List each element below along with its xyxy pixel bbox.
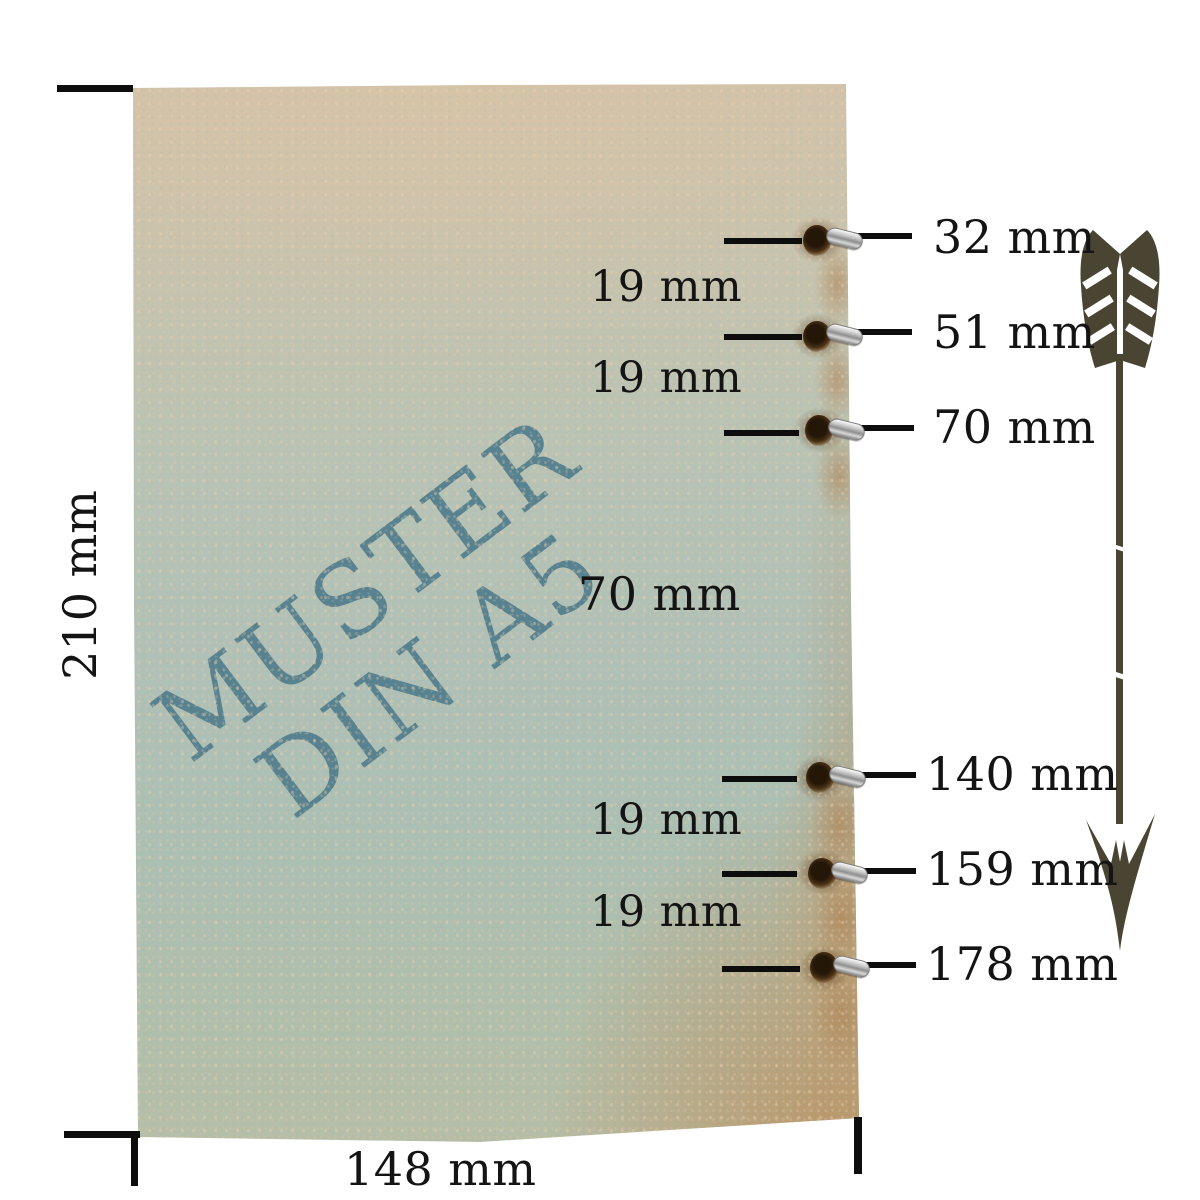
width-dim-label: 148 mm [344,1142,536,1196]
hole-3-label: 70 mm [933,400,1096,454]
gap-4-label: 19 mm [590,795,742,845]
width-dim-left-tick-v [131,1131,138,1186]
hole-2-label: 51 mm [933,305,1096,359]
gap-3-label: 70 mm [578,567,741,621]
height-dim-top-tick [57,85,133,92]
hole-3-line-left [724,430,799,436]
din-a5-template-diagram: MUSTER DIN A5 210 mm 148 mm 32 mm 19 mm … [0,0,1200,1200]
width-dim-left-tick-h [64,1131,140,1138]
hole-2-line-left [724,334,802,340]
width-dim-right-tick [854,1117,862,1174]
hole-4-label: 140 mm [926,747,1118,801]
hole-5-line-left [722,871,797,877]
height-dim-label: 210 mm [53,490,107,680]
hole-6-line-left [722,966,800,972]
gap-2-label: 19 mm [590,353,742,403]
hole-1-line-left [724,238,802,244]
hole-4-line-left [722,776,797,782]
hole-5-label: 159 mm [926,842,1118,896]
hole-6-label: 178 mm [926,937,1118,991]
hole-1-label: 32 mm [933,210,1096,264]
gap-1-label: 19 mm [590,262,742,312]
gap-5-label: 19 mm [590,887,742,937]
